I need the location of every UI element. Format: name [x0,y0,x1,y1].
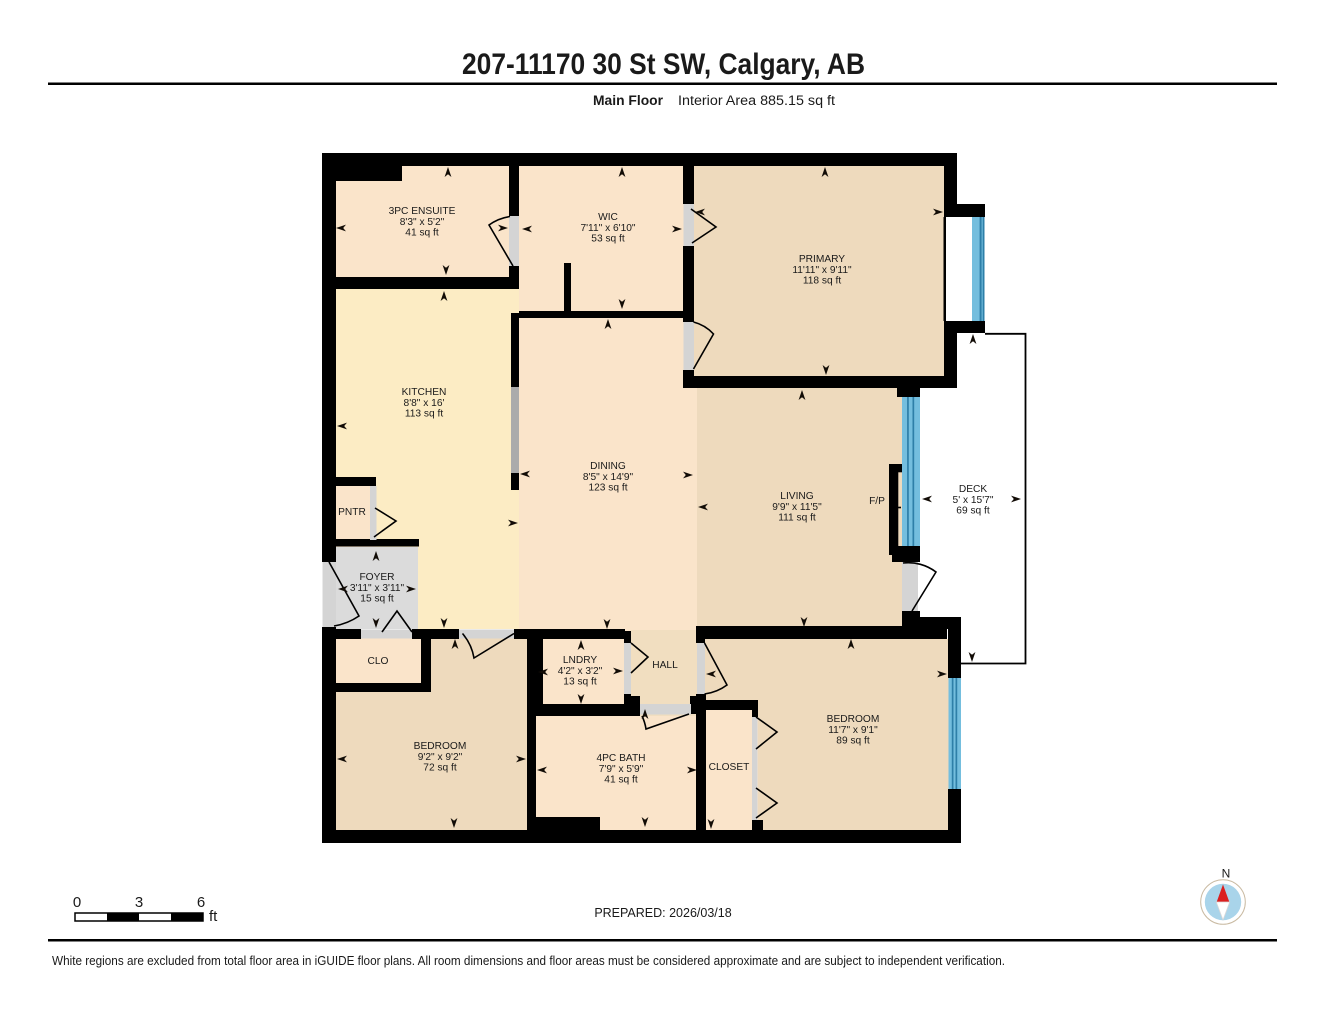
svg-text:4'2" x 3'2": 4'2" x 3'2" [558,666,603,677]
svg-text:PREPARED: 2026/03/18: PREPARED: 2026/03/18 [594,906,731,920]
svg-text:89 sq ft: 89 sq ft [836,736,870,747]
svg-text:113 sq ft: 113 sq ft [405,409,443,420]
svg-text:Interior Area 885.15 sq ft: Interior Area 885.15 sq ft [678,93,835,108]
svg-text:PRIMARY: PRIMARY [799,254,845,265]
svg-text:53 sq ft: 53 sq ft [591,234,625,245]
svg-text:8'5" x 14'9": 8'5" x 14'9" [583,472,634,483]
svg-text:8'8" x 16': 8'8" x 16' [404,398,445,409]
svg-text:4PC BATH: 4PC BATH [596,753,645,764]
svg-text:PNTR: PNTR [338,507,366,518]
svg-text:15 sq ft: 15 sq ft [360,594,394,605]
svg-text:ft: ft [209,908,218,925]
svg-text:11'7" x 9'1": 11'7" x 9'1" [828,725,878,736]
svg-text:CLOSET: CLOSET [709,762,750,773]
svg-text:Main Floor: Main Floor [593,93,664,108]
svg-text:7'9" x 5'9": 7'9" x 5'9" [599,764,644,775]
svg-text:0: 0 [73,894,81,911]
svg-text:11'11" x 9'11": 11'11" x 9'11" [792,265,852,276]
svg-text:207-11170 30 St SW, Calgary, A: 207-11170 30 St SW, Calgary, AB [462,48,865,81]
svg-text:5' x 15'7": 5' x 15'7" [953,495,994,506]
svg-text:F/P: F/P [869,496,885,507]
svg-text:9'2" x 9'2": 9'2" x 9'2" [418,752,463,763]
svg-text:8'3" x 5'2": 8'3" x 5'2" [400,217,445,228]
svg-text:KITCHEN: KITCHEN [402,387,447,398]
svg-text:118 sq ft: 118 sq ft [803,276,841,287]
svg-text:3: 3 [135,894,143,911]
svg-text:69 sq ft: 69 sq ft [956,506,990,517]
svg-text:DINING: DINING [590,461,626,472]
svg-text:CLO: CLO [368,656,389,667]
svg-text:123 sq ft: 123 sq ft [588,483,627,494]
svg-text:3PC ENSUITE: 3PC ENSUITE [389,206,456,217]
svg-text:LNDRY: LNDRY [563,655,598,666]
svg-text:HALL: HALL [652,660,678,671]
svg-text:LIVING: LIVING [780,491,813,502]
svg-text:3'11" x 3'11": 3'11" x 3'11" [350,583,405,594]
svg-text:13 sq ft: 13 sq ft [563,677,597,688]
svg-text:9'9" x 11'5": 9'9" x 11'5" [772,502,822,513]
svg-text:6: 6 [197,894,205,911]
svg-text:41 sq ft: 41 sq ft [604,775,638,786]
svg-text:FOYER: FOYER [359,572,394,583]
svg-text:DECK: DECK [959,484,988,495]
svg-text:WIC: WIC [598,212,618,223]
svg-text:N: N [1222,867,1231,881]
svg-text:72 sq ft: 72 sq ft [423,763,457,774]
svg-text:41 sq ft: 41 sq ft [405,228,439,239]
svg-text:White regions are excluded fro: White regions are excluded from total fl… [52,953,1005,968]
svg-text:111 sq ft: 111 sq ft [778,513,816,524]
svg-text:BEDROOM: BEDROOM [827,714,880,725]
svg-text:7'11" x 6'10": 7'11" x 6'10" [580,223,635,234]
svg-text:BEDROOM: BEDROOM [414,741,467,752]
